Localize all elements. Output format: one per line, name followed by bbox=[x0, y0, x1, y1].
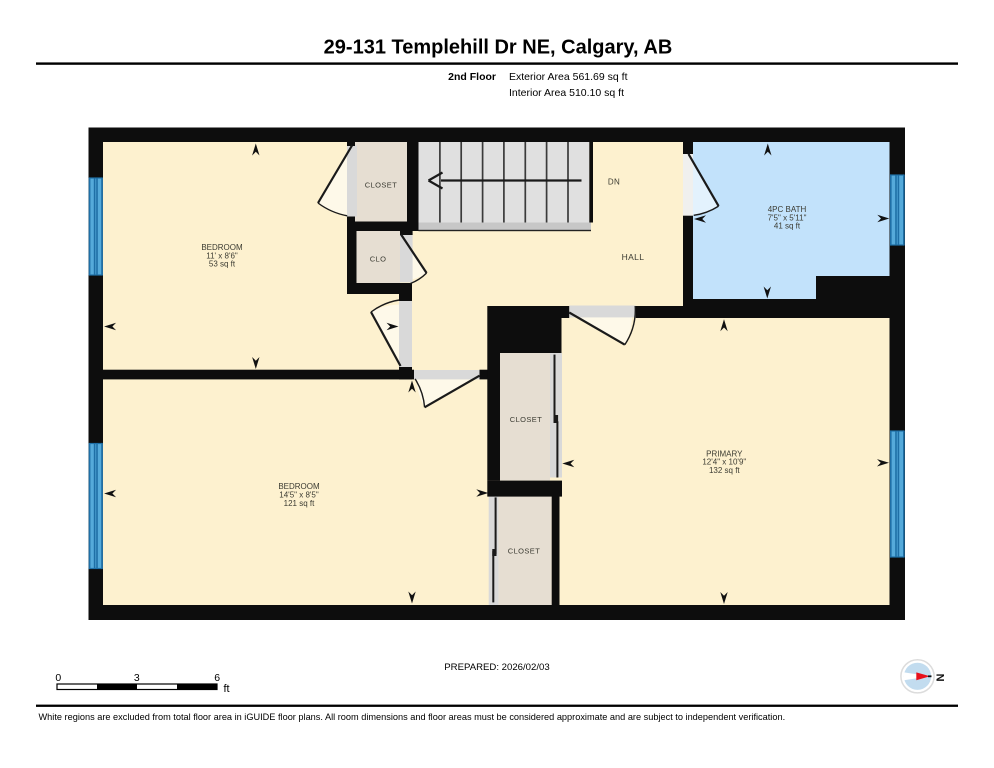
svg-text:121 sq ft: 121 sq ft bbox=[284, 499, 315, 508]
svg-text:53 sq ft: 53 sq ft bbox=[209, 260, 236, 269]
svg-text:0: 0 bbox=[55, 672, 61, 684]
svg-text:HALL: HALL bbox=[622, 252, 645, 262]
svg-text:Exterior Area 561.69 sq ft: Exterior Area 561.69 sq ft bbox=[509, 71, 628, 83]
svg-text:Interior Area 510.10 sq ft: Interior Area 510.10 sq ft bbox=[509, 87, 624, 99]
svg-text:DN: DN bbox=[608, 177, 620, 186]
svg-text:41 sq ft: 41 sq ft bbox=[774, 222, 801, 231]
svg-text:132 sq ft: 132 sq ft bbox=[709, 466, 740, 475]
svg-text:CLOSET: CLOSET bbox=[365, 181, 397, 190]
svg-text:CLO: CLO bbox=[370, 254, 387, 263]
svg-text:3: 3 bbox=[134, 672, 140, 684]
svg-text:White regions are excluded fro: White regions are excluded from total fl… bbox=[39, 712, 786, 722]
svg-text:ft: ft bbox=[224, 683, 230, 695]
svg-text:CLOSET: CLOSET bbox=[508, 546, 540, 555]
svg-text:2nd Floor: 2nd Floor bbox=[448, 71, 496, 83]
svg-text:6: 6 bbox=[214, 672, 220, 684]
svg-text:29-131 Templehill Dr NE, Calga: 29-131 Templehill Dr NE, Calgary, AB bbox=[324, 37, 673, 59]
svg-text:PREPARED: 2026/02/03: PREPARED: 2026/02/03 bbox=[444, 662, 549, 673]
svg-text:CLOSET: CLOSET bbox=[510, 415, 542, 424]
svg-text:N: N bbox=[934, 674, 946, 682]
